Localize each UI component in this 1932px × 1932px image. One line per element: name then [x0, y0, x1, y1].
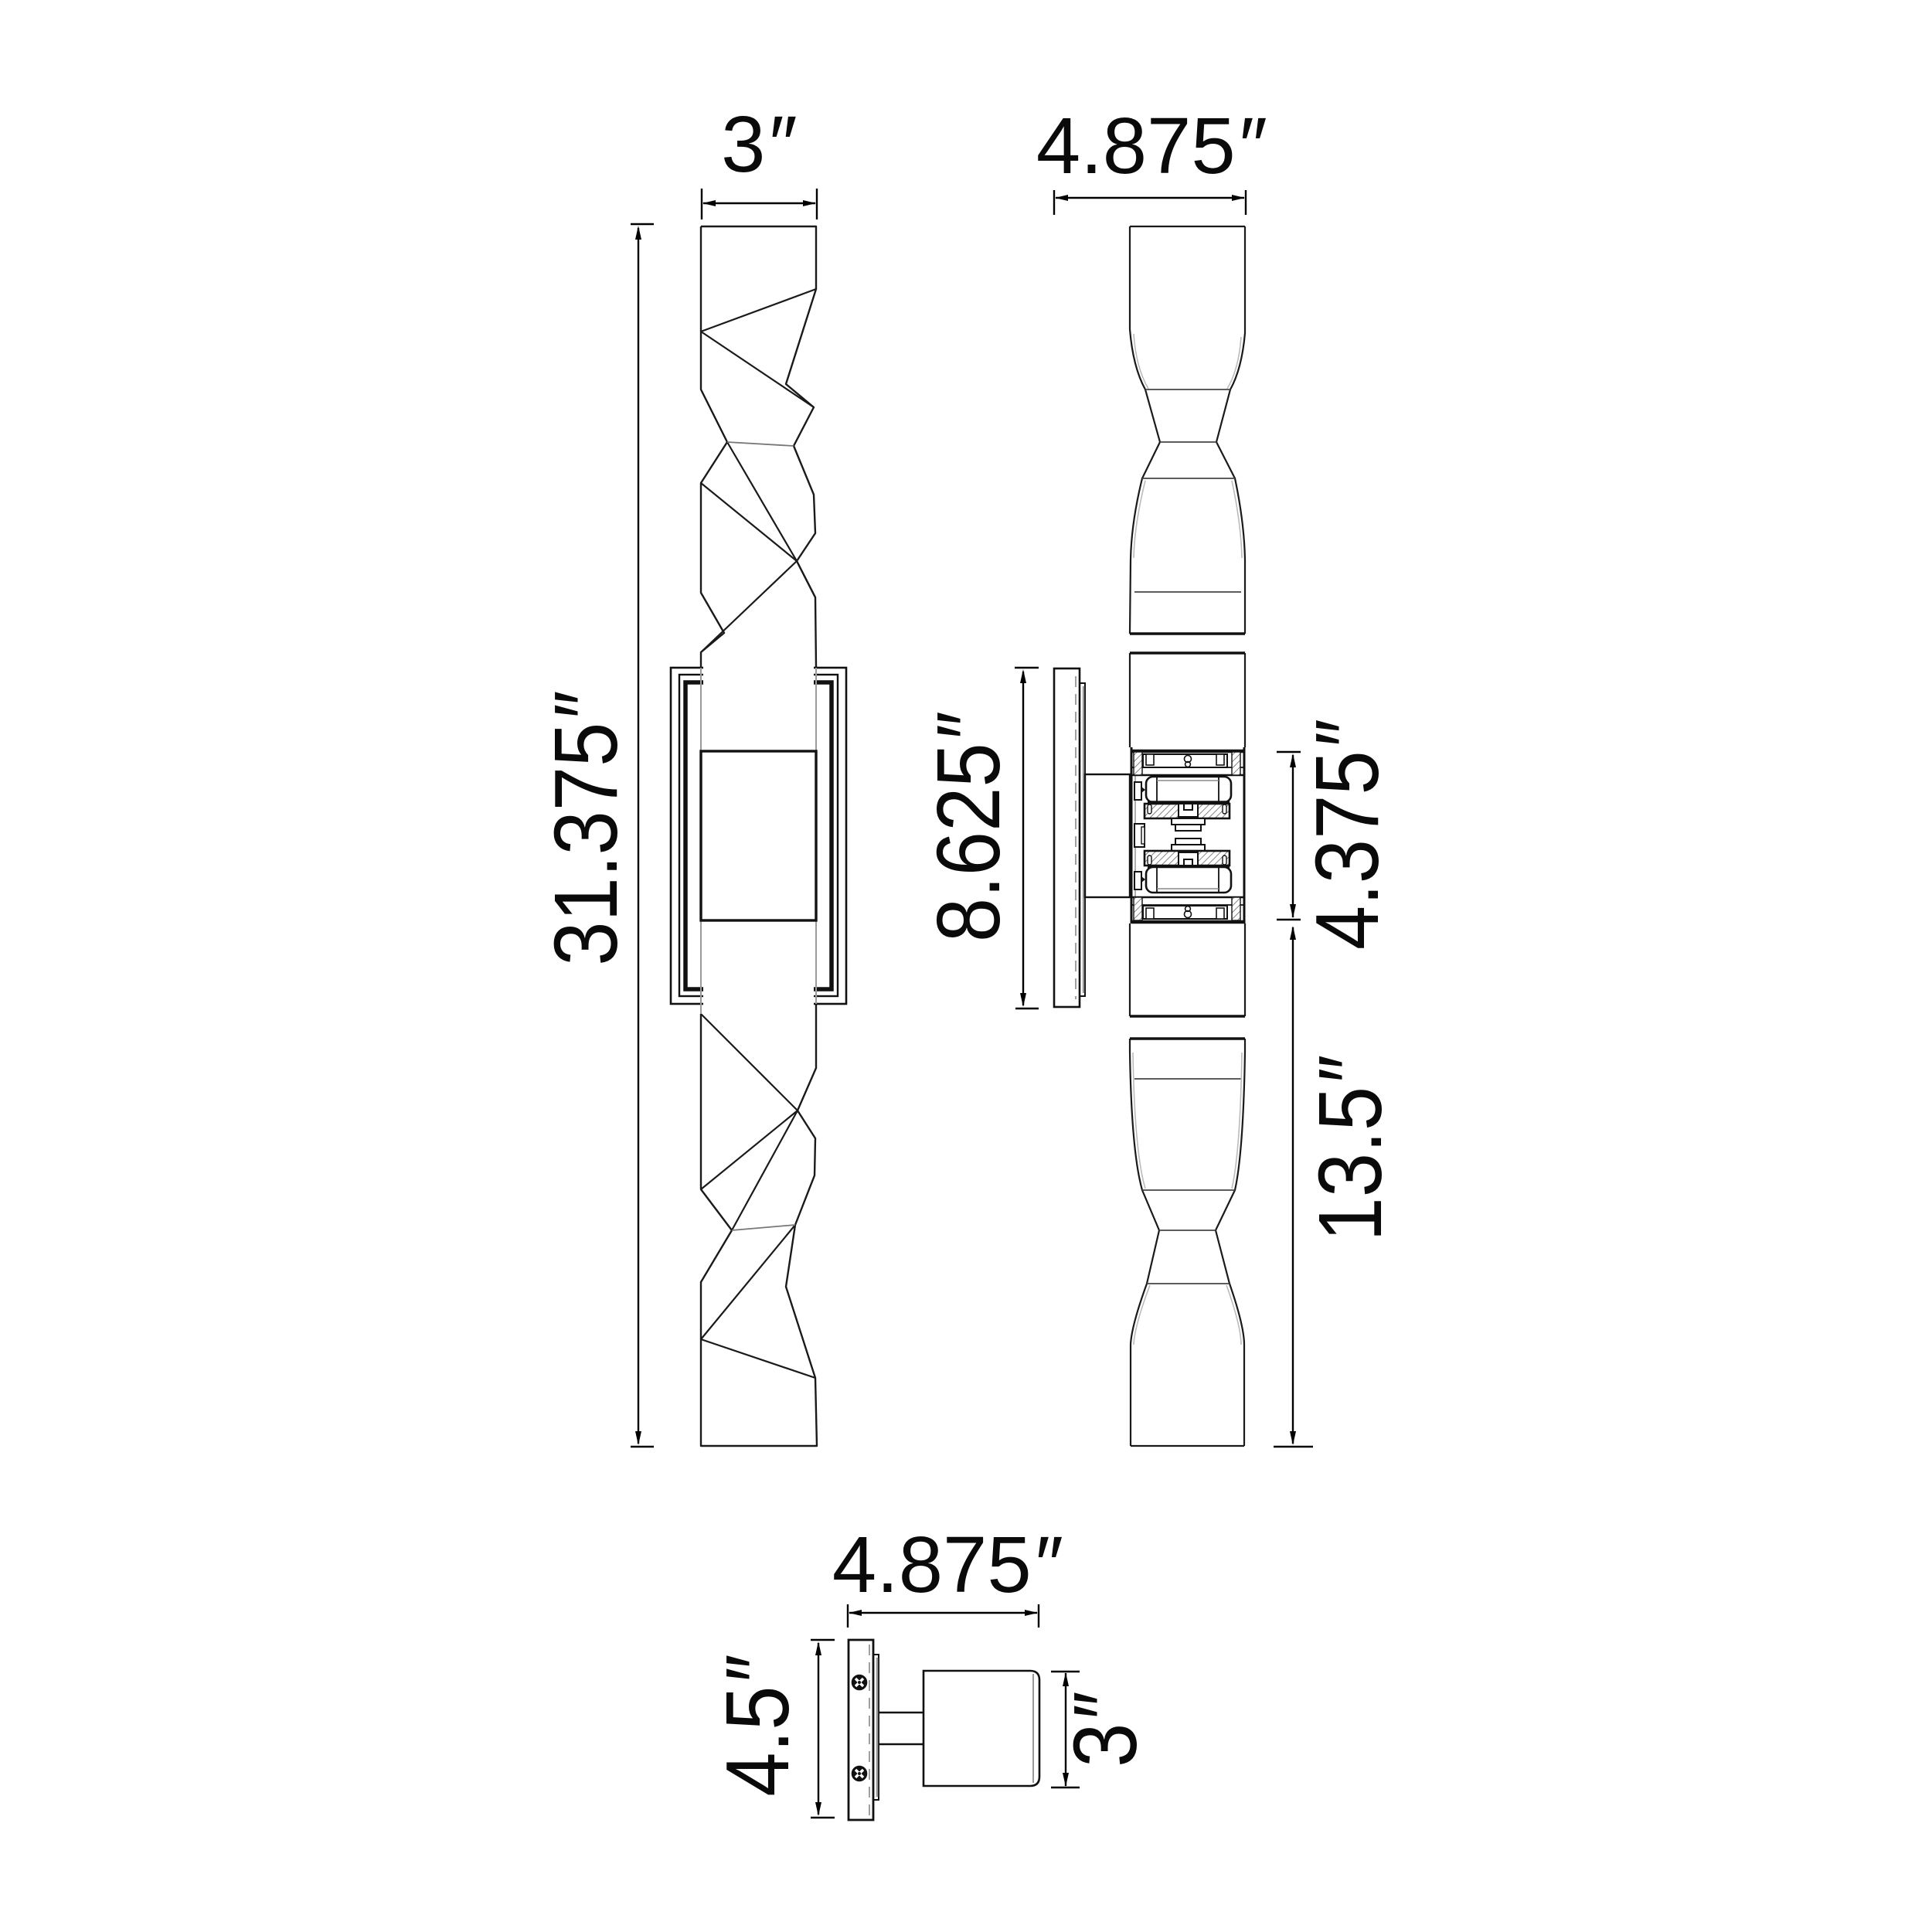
svg-text:4.875″: 4.875″: [1036, 101, 1267, 190]
svg-text:3″: 3″: [721, 100, 796, 189]
svg-text:4.875″: 4.875″: [832, 1520, 1063, 1609]
svg-text:4.375″: 4.375″: [1298, 719, 1397, 950]
svg-text:8.625″: 8.625″: [919, 712, 1019, 942]
svg-text:4.5″: 4.5″: [708, 1655, 808, 1796]
svg-text:13.5″: 13.5″: [1301, 1056, 1400, 1242]
svg-text:3″: 3″: [1056, 1692, 1155, 1767]
svg-text:31.375″: 31.375″: [536, 691, 636, 965]
